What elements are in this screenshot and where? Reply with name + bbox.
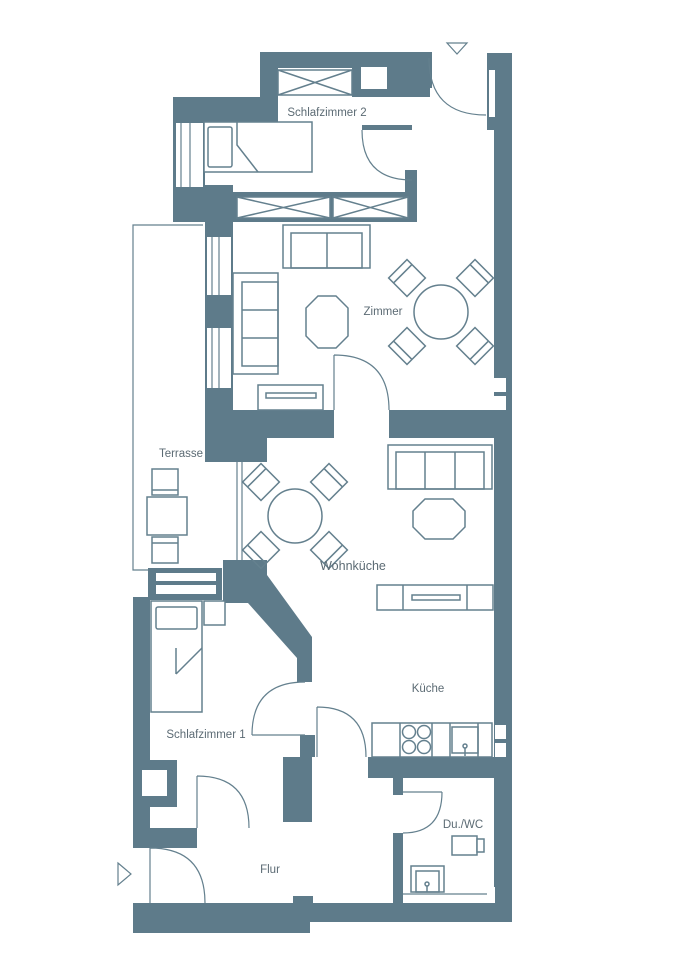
door-swing-icon bbox=[150, 848, 205, 903]
room-label-flur: Flur bbox=[260, 864, 280, 876]
door-swing-icon bbox=[334, 355, 389, 410]
shaft-icon bbox=[493, 378, 506, 392]
window-icon bbox=[207, 328, 231, 388]
door-recess bbox=[489, 70, 495, 117]
door-swing-icon bbox=[362, 130, 412, 180]
shaft-icon bbox=[493, 396, 506, 410]
room-label-duwc: Du./WC bbox=[443, 819, 483, 831]
room-label-wohnkueche: Wohnküche bbox=[320, 559, 386, 573]
wardrobe-icon bbox=[237, 197, 330, 218]
dining-table-icon bbox=[389, 260, 494, 365]
door-swing-icon bbox=[317, 707, 366, 757]
door-swing-icon bbox=[252, 682, 305, 735]
wardrobe-icon bbox=[278, 70, 352, 95]
room-label-kueche: Küche bbox=[412, 683, 445, 695]
window-icon bbox=[176, 123, 203, 187]
sofa-icon bbox=[283, 225, 370, 268]
room-label-schlafzimmer1: Schlafzimmer 1 bbox=[166, 729, 245, 741]
shower-icon bbox=[411, 866, 444, 892]
room-label-terrasse: Terrasse bbox=[159, 448, 203, 460]
bed-icon bbox=[204, 122, 312, 172]
dining-table-icon bbox=[243, 464, 348, 569]
kitchen-counter-icon bbox=[372, 723, 492, 757]
wardrobe-icon bbox=[333, 197, 408, 218]
room-label-schlafzimmer2: Schlafzimmer 2 bbox=[287, 107, 366, 119]
floor-plan-page: Schlafzimmer 2 Zimmer Terrasse Wohnküche… bbox=[0, 0, 679, 960]
wc-icon bbox=[452, 836, 484, 855]
shaft-icon bbox=[495, 743, 506, 757]
coffee-table-icon bbox=[413, 499, 465, 539]
room-label-zimmer: Zimmer bbox=[364, 306, 403, 318]
entrance-arrow-icon bbox=[447, 43, 467, 54]
floor-plan: Schlafzimmer 2 Zimmer Terrasse Wohnküche… bbox=[0, 0, 679, 960]
door-swing-icon bbox=[403, 792, 442, 833]
terrace-table-icon bbox=[147, 469, 187, 563]
sideboard-icon bbox=[258, 385, 323, 410]
shaft-icon bbox=[142, 770, 167, 796]
terrace-glass-door-icon bbox=[234, 462, 245, 560]
door-swing-icon bbox=[429, 58, 486, 115]
coffee-table-icon bbox=[306, 296, 348, 348]
terrace-step bbox=[156, 573, 216, 581]
shaft-icon bbox=[487, 887, 495, 903]
shaft-icon bbox=[495, 725, 506, 739]
door-swing-icon bbox=[197, 776, 249, 828]
terrace-step bbox=[156, 585, 216, 594]
window-icon bbox=[207, 237, 231, 295]
sofa-icon bbox=[233, 273, 278, 374]
bed-icon bbox=[151, 601, 202, 712]
nightstand-icon bbox=[204, 601, 225, 625]
shaft-icon bbox=[361, 67, 387, 89]
entrance-arrow-icon bbox=[118, 863, 131, 885]
sofa-icon bbox=[388, 445, 492, 489]
sideboard-icon bbox=[377, 585, 493, 610]
